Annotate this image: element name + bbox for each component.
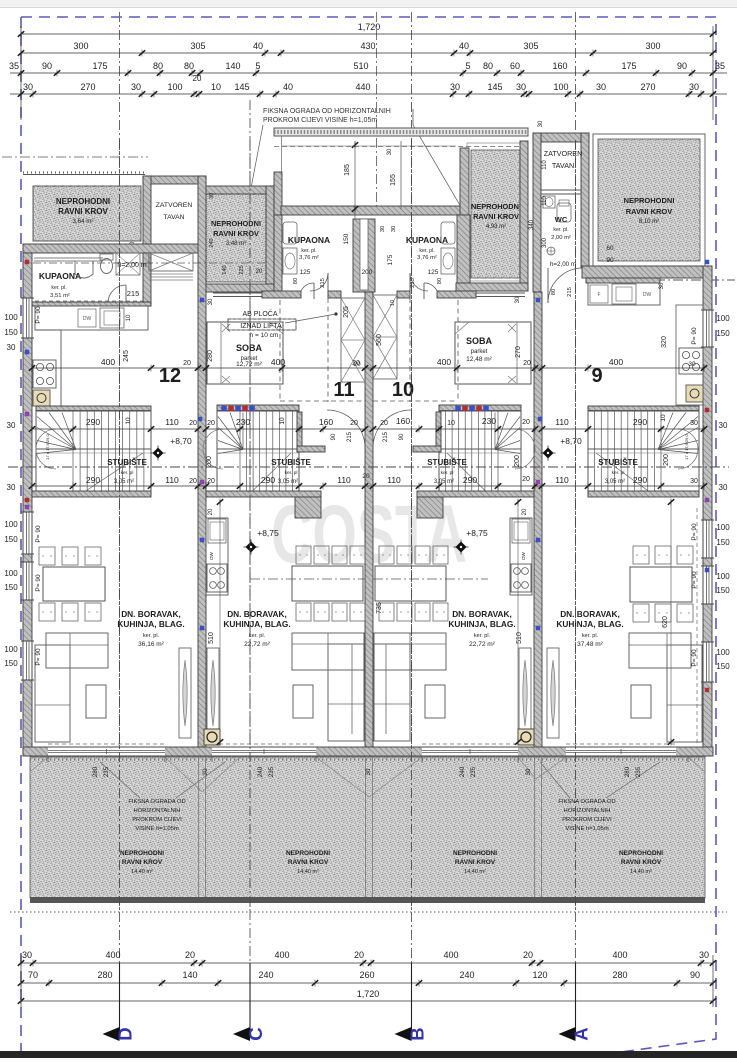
svg-text:3,48 m²: 3,48 m² (226, 241, 246, 247)
svg-text:20: 20 (522, 508, 528, 515)
svg-text:+8,70: +8,70 (560, 436, 582, 446)
svg-text:10: 10 (279, 417, 286, 425)
svg-text:RAVNI KROV: RAVNI KROV (213, 229, 259, 238)
svg-text:400: 400 (437, 357, 451, 367)
svg-text:PROKROM CIJEVI VISINE h=1,05m: PROKROM CIJEVI VISINE h=1,05m (263, 117, 377, 124)
svg-text:100: 100 (167, 82, 182, 92)
svg-text:FIKSNA OGRADA OD: FIKSNA OGRADA OD (558, 799, 615, 805)
svg-text:30: 30 (719, 421, 728, 430)
svg-text:280: 280 (624, 766, 631, 777)
svg-text:3,64 m²: 3,64 m² (73, 218, 94, 225)
svg-text:30: 30 (689, 82, 699, 92)
svg-text:235: 235 (470, 766, 477, 777)
svg-text:KUHINJA, BLAG.: KUHINJA, BLAG. (223, 619, 290, 629)
svg-text:22,72 m²: 22,72 m² (244, 641, 270, 648)
svg-text:37,48 m²: 37,48 m² (577, 641, 603, 648)
svg-text:20: 20 (523, 950, 533, 960)
svg-text:RAVNI KROV: RAVNI KROV (626, 207, 673, 216)
svg-text:30: 30 (690, 420, 698, 427)
svg-text:110: 110 (165, 417, 179, 427)
svg-text:10: 10 (660, 414, 667, 422)
svg-text:280: 280 (92, 766, 99, 777)
svg-text:60: 60 (606, 245, 614, 252)
svg-text:100: 100 (4, 313, 18, 322)
svg-text:155: 155 (390, 174, 397, 186)
svg-text:35: 35 (9, 61, 19, 71)
svg-text:145: 145 (234, 82, 249, 92)
svg-text:NEPROHODNI: NEPROHODNI (286, 850, 330, 857)
svg-text:HORIZONTALNIH: HORIZONTALNIH (564, 808, 611, 814)
svg-text:510: 510 (516, 632, 523, 644)
svg-text:100: 100 (553, 82, 568, 92)
svg-text:20: 20 (522, 419, 530, 426)
svg-text:110: 110 (542, 160, 548, 170)
svg-text:RAVNI KROV: RAVNI KROV (288, 859, 329, 866)
svg-text:DW: DW (643, 292, 652, 298)
svg-text:110: 110 (555, 475, 569, 485)
svg-text:3,05 m²: 3,05 m² (114, 479, 134, 485)
svg-text:215: 215 (567, 287, 573, 297)
svg-text:12: 12 (159, 365, 181, 387)
svg-text:VISINE h=1,05m: VISINE h=1,05m (565, 826, 609, 832)
svg-text:17 x 17,6/29,0: 17 x 17,6/29,0 (684, 434, 689, 460)
svg-text:230: 230 (236, 417, 250, 427)
svg-text:225: 225 (239, 265, 245, 274)
svg-text:175: 175 (387, 254, 394, 265)
svg-text:20: 20 (350, 420, 358, 427)
svg-text:FIKSNA OGRADA OD: FIKSNA OGRADA OD (128, 799, 185, 805)
svg-text:20: 20 (523, 360, 531, 367)
svg-text:120: 120 (532, 970, 547, 980)
svg-text:80: 80 (483, 61, 493, 71)
svg-text:14,40 m²: 14,40 m² (464, 869, 486, 875)
svg-text:110: 110 (337, 475, 351, 485)
svg-text:17 x 17,6/29,0: 17 x 17,6/29,0 (45, 434, 50, 460)
svg-text:NEPROHODNI: NEPROHODNI (120, 850, 164, 857)
svg-text:90: 90 (399, 433, 405, 440)
svg-text:3,05 m²: 3,05 m² (605, 479, 625, 485)
svg-text:12,72 m²: 12,72 m² (236, 361, 262, 368)
svg-text:30: 30 (515, 296, 521, 303)
svg-text:F: F (597, 292, 600, 298)
svg-text:30: 30 (7, 343, 16, 352)
svg-text:3,05 m²: 3,05 m² (434, 479, 454, 485)
svg-text:40: 40 (459, 41, 469, 51)
svg-text:150: 150 (716, 662, 730, 671)
svg-text:30: 30 (596, 82, 606, 92)
svg-text:80: 80 (153, 61, 163, 71)
svg-text:AB PLOČA: AB PLOČA (242, 309, 277, 318)
svg-text:parket: parket (471, 349, 488, 355)
svg-text:STUBIŠTE: STUBIŠTE (427, 458, 467, 467)
svg-text:300: 300 (73, 41, 88, 51)
svg-text:RAVNI KROV: RAVNI KROV (58, 207, 108, 216)
svg-text:20: 20 (352, 360, 360, 367)
svg-text:100: 100 (4, 520, 18, 529)
svg-text:30: 30 (365, 768, 372, 775)
svg-text:150: 150 (4, 535, 18, 544)
svg-text:20: 20 (189, 478, 197, 485)
svg-text:30: 30 (719, 483, 728, 492)
svg-text:235: 235 (103, 766, 110, 777)
svg-text:RAVNI KROV: RAVNI KROV (473, 212, 519, 221)
svg-text:DN. BORAVAK,: DN. BORAVAK, (227, 609, 287, 619)
svg-text:IZNAD LIFTA: IZNAD LIFTA (240, 323, 282, 330)
svg-text:160: 160 (319, 417, 333, 427)
svg-text:ker. pl.: ker. pl. (301, 248, 316, 254)
svg-text:235: 235 (268, 766, 275, 777)
svg-text:215: 215 (320, 278, 326, 288)
svg-text:10: 10 (125, 417, 132, 425)
svg-text:DN. BORAVAK,: DN. BORAVAK, (560, 609, 620, 619)
svg-text:200: 200 (362, 269, 373, 276)
svg-text:20: 20 (362, 473, 370, 480)
svg-text:620: 620 (662, 616, 669, 628)
svg-text:P= 90: P= 90 (691, 649, 698, 667)
svg-text:30: 30 (22, 950, 32, 960)
svg-text:30: 30 (208, 298, 214, 305)
svg-text:h = 10 cm: h = 10 cm (250, 332, 279, 339)
svg-text:+8,75: +8,75 (257, 528, 279, 538)
svg-text:30: 30 (538, 120, 544, 127)
svg-text:305: 305 (523, 41, 538, 51)
svg-text:510: 510 (353, 61, 368, 71)
svg-text:ker. pl.: ker. pl. (553, 227, 568, 233)
svg-text:20: 20 (208, 508, 214, 515)
svg-text:10: 10 (390, 300, 396, 306)
svg-text:290: 290 (463, 475, 477, 485)
svg-text:150: 150 (4, 659, 18, 668)
svg-text:240: 240 (459, 970, 474, 980)
svg-text:270: 270 (640, 82, 655, 92)
svg-text:TAVAN: TAVAN (163, 214, 184, 221)
svg-text:36,16 m²: 36,16 m² (138, 641, 164, 648)
svg-text:40: 40 (283, 82, 293, 92)
svg-text:20: 20 (522, 476, 530, 483)
svg-text:20: 20 (189, 420, 197, 427)
svg-text:10: 10 (126, 314, 132, 321)
svg-text:35: 35 (715, 61, 725, 71)
svg-text:30: 30 (209, 193, 215, 199)
svg-text:NEPROHODNI: NEPROHODNI (471, 202, 521, 211)
svg-text:270: 270 (80, 82, 95, 92)
svg-text:80: 80 (293, 278, 299, 284)
svg-text:A: A (571, 1027, 592, 1040)
svg-text:290: 290 (633, 475, 647, 485)
svg-text:20: 20 (185, 950, 195, 960)
svg-text:P= 90: P= 90 (35, 306, 42, 324)
svg-text:80: 80 (184, 61, 194, 71)
svg-text:140: 140 (182, 970, 197, 980)
svg-text:ZATVOREN: ZATVOREN (544, 149, 583, 158)
svg-text:90: 90 (606, 257, 614, 264)
svg-text:400: 400 (274, 950, 289, 960)
svg-text:110: 110 (555, 417, 569, 427)
svg-text:70: 70 (28, 970, 38, 980)
svg-text:560: 560 (376, 334, 383, 346)
svg-text:12,48 m²: 12,48 m² (466, 356, 492, 363)
svg-text:ker. pl.: ker. pl. (51, 285, 66, 291)
svg-text:DN. BORAVAK,: DN. BORAVAK, (121, 609, 181, 619)
svg-text:110: 110 (387, 475, 401, 485)
svg-text:HORIZONTALNIH: HORIZONTALNIH (134, 808, 181, 814)
svg-text:280: 280 (97, 970, 112, 980)
svg-text:90: 90 (331, 433, 337, 440)
svg-text:PROKROM CIJEVI: PROKROM CIJEVI (562, 817, 612, 823)
svg-text:40: 40 (253, 41, 263, 51)
svg-text:8,10 m²: 8,10 m² (639, 219, 659, 225)
svg-text:P= 90: P= 90 (35, 574, 42, 592)
svg-text:14,40 m²: 14,40 m² (131, 869, 153, 875)
svg-text:230: 230 (482, 416, 496, 426)
svg-text:280: 280 (207, 350, 214, 362)
svg-text:ker. pl.: ker. pl. (582, 633, 599, 639)
svg-text:140: 140 (225, 61, 240, 71)
svg-text:ker. pl.: ker. pl. (249, 633, 266, 639)
svg-text:150: 150 (4, 328, 18, 337)
svg-text:80: 80 (551, 289, 557, 295)
svg-text:D: D (115, 1027, 136, 1040)
svg-text:290: 290 (633, 417, 647, 427)
svg-text:KUPAONA: KUPAONA (288, 235, 330, 245)
svg-text:240: 240 (459, 766, 466, 777)
svg-text:140: 140 (222, 265, 228, 274)
svg-text:125: 125 (300, 269, 311, 276)
svg-text:3,05 m²: 3,05 m² (278, 479, 298, 485)
svg-text:215: 215 (383, 431, 389, 442)
svg-text:22,72 m²: 22,72 m² (469, 641, 495, 648)
svg-text:TAVAN: TAVAN (552, 161, 574, 170)
svg-text:ker. pl: ker. pl (121, 470, 134, 476)
svg-text:175: 175 (621, 61, 636, 71)
svg-text:9: 9 (591, 365, 602, 387)
svg-text:200: 200 (206, 456, 213, 468)
svg-text:400: 400 (443, 950, 458, 960)
svg-text:DW: DW (83, 316, 92, 322)
svg-text:SOBA: SOBA (466, 336, 493, 346)
svg-text:215: 215 (410, 278, 416, 288)
svg-text:290: 290 (86, 417, 100, 427)
svg-text:P= 90: P= 90 (691, 571, 698, 589)
svg-text:P= 90: P= 90 (35, 525, 42, 543)
svg-text:30: 30 (7, 483, 16, 492)
svg-text:ker. pl.: ker. pl. (419, 248, 434, 254)
svg-text:30: 30 (690, 478, 698, 485)
svg-text:400: 400 (101, 357, 115, 367)
svg-text:ker. pl.: ker. pl. (474, 633, 491, 639)
svg-text:30: 30 (380, 226, 386, 232)
svg-text:NEPROHODNI: NEPROHODNI (56, 197, 110, 206)
svg-text:270: 270 (515, 346, 522, 358)
svg-text:14,40 m²: 14,40 m² (630, 869, 652, 875)
svg-text:STUBIŠTE: STUBIŠTE (107, 458, 147, 467)
svg-text:430: 430 (360, 41, 375, 51)
svg-text:215: 215 (127, 289, 140, 298)
svg-text:320: 320 (661, 336, 668, 348)
svg-text:30: 30 (202, 768, 209, 775)
svg-text:KUHINJA, BLAG.: KUHINJA, BLAG. (556, 619, 623, 629)
svg-text:1,720: 1,720 (357, 989, 380, 999)
svg-text:400: 400 (612, 950, 627, 960)
svg-text:30: 30 (516, 82, 526, 92)
svg-text:2,00 m²: 2,00 m² (551, 235, 571, 241)
svg-text:110: 110 (542, 196, 548, 206)
svg-text:150: 150 (343, 233, 350, 244)
svg-text:30: 30 (450, 82, 460, 92)
svg-text:150: 150 (716, 586, 730, 595)
svg-text:185: 185 (344, 164, 351, 176)
svg-text:240: 240 (258, 970, 273, 980)
svg-text:200: 200 (514, 455, 521, 467)
svg-text:NEPROHODNI: NEPROHODNI (453, 850, 497, 857)
svg-text:20: 20 (354, 950, 364, 960)
svg-text:510: 510 (208, 632, 215, 644)
svg-text:20: 20 (193, 74, 202, 83)
svg-text:RAVNI KROV: RAVNI KROV (455, 859, 496, 866)
svg-text:205: 205 (343, 306, 350, 318)
svg-text:110: 110 (165, 475, 179, 485)
svg-text:80: 80 (437, 278, 443, 284)
svg-text:280: 280 (612, 970, 627, 980)
svg-text:305: 305 (190, 41, 205, 51)
svg-text:14,40 m²: 14,40 m² (297, 869, 319, 875)
svg-text:20: 20 (207, 478, 215, 485)
svg-text:3,51 m²: 3,51 m² (50, 293, 70, 299)
svg-text:30: 30 (131, 82, 141, 92)
svg-text:235: 235 (635, 766, 642, 777)
svg-text:20: 20 (183, 360, 191, 367)
svg-text:90: 90 (42, 61, 52, 71)
svg-text:100: 100 (716, 572, 730, 581)
svg-text:20: 20 (380, 420, 388, 427)
svg-text:ker. pl: ker. pl (285, 470, 298, 476)
svg-text:340: 340 (529, 219, 535, 230)
svg-text:245: 245 (123, 350, 130, 362)
svg-text:440: 440 (355, 82, 370, 92)
svg-text:ZATVOREN: ZATVOREN (156, 202, 193, 209)
svg-text:STUBIŠTE: STUBIŠTE (598, 458, 638, 467)
svg-text:4,93 m²: 4,93 m² (486, 224, 506, 230)
svg-text:215: 215 (347, 431, 353, 442)
svg-text:90: 90 (690, 970, 700, 980)
svg-text:150: 150 (4, 583, 18, 592)
svg-text:30: 30 (391, 226, 397, 232)
svg-text:90: 90 (677, 61, 687, 71)
svg-text:KUHINJA, BLAG.: KUHINJA, BLAG. (117, 619, 184, 629)
svg-text:20: 20 (256, 269, 263, 275)
svg-text:NEPROHODNI: NEPROHODNI (211, 219, 261, 228)
svg-text:735: 735 (376, 602, 383, 614)
svg-text:125: 125 (428, 269, 439, 276)
svg-text:260: 260 (359, 970, 374, 980)
svg-text:100: 100 (716, 648, 730, 657)
svg-text:300: 300 (542, 237, 548, 248)
svg-text:30: 30 (525, 768, 532, 775)
svg-text:P= 90: P= 90 (35, 648, 42, 666)
svg-text:10: 10 (447, 420, 455, 427)
svg-text:300: 300 (645, 41, 660, 51)
svg-text:KUHINJA, BLAG.: KUHINJA, BLAG. (448, 619, 515, 629)
svg-text:1,720: 1,720 (358, 22, 381, 32)
svg-text:100: 100 (716, 523, 730, 532)
svg-text:STUBIŠTE: STUBIŠTE (271, 458, 311, 467)
svg-text:20: 20 (207, 420, 215, 427)
svg-text:60: 60 (510, 61, 520, 71)
svg-text:h=2,00 m: h=2,00 m (550, 261, 576, 268)
svg-text:DN. BORAVAK,: DN. BORAVAK, (452, 609, 512, 619)
svg-text:P= 90: P= 90 (691, 523, 698, 541)
svg-text:RAVNI KROV: RAVNI KROV (621, 859, 662, 866)
svg-text:160: 160 (396, 416, 410, 426)
svg-text:VISINE h=1,05m: VISINE h=1,05m (135, 826, 179, 832)
svg-text:30: 30 (7, 421, 16, 430)
svg-text:DW: DW (521, 552, 526, 560)
svg-text:30: 30 (699, 950, 709, 960)
svg-text:10: 10 (392, 379, 414, 401)
svg-text:400: 400 (609, 357, 623, 367)
svg-text:3,76 m²: 3,76 m² (417, 255, 437, 261)
svg-text:150: 150 (716, 329, 730, 338)
svg-text:145: 145 (487, 82, 502, 92)
svg-text:5: 5 (465, 61, 470, 71)
svg-text:100: 100 (4, 569, 18, 578)
svg-text:+8,75: +8,75 (466, 528, 488, 538)
svg-text:290: 290 (261, 475, 275, 485)
svg-text:5: 5 (255, 61, 260, 71)
svg-text:175: 175 (92, 61, 107, 71)
svg-text:FIKSNA OGRADA OD HORIZONTALNIH: FIKSNA OGRADA OD HORIZONTALNIH (263, 108, 391, 115)
svg-text:100: 100 (716, 314, 730, 323)
svg-text:240: 240 (257, 766, 264, 777)
svg-text:10: 10 (211, 82, 221, 92)
svg-text:+8,70: +8,70 (170, 436, 192, 446)
svg-text:ker. pl: ker. pl (612, 470, 625, 476)
svg-text:30: 30 (23, 82, 33, 92)
svg-text:DW: DW (209, 552, 214, 560)
svg-text:SOBA: SOBA (236, 343, 263, 353)
svg-text:NEPROHODNI: NEPROHODNI (619, 850, 663, 857)
svg-text:B: B (407, 1027, 428, 1040)
svg-text:30: 30 (688, 361, 696, 368)
svg-text:100: 100 (4, 645, 18, 654)
svg-text:PROKROM CIJEVI: PROKROM CIJEVI (132, 817, 182, 823)
svg-text:240: 240 (209, 238, 215, 247)
svg-text:200: 200 (663, 454, 670, 466)
svg-text:RAVNI KROV: RAVNI KROV (122, 859, 163, 866)
svg-text:400: 400 (105, 950, 120, 960)
svg-text:160: 160 (552, 61, 567, 71)
svg-text:C: C (245, 1027, 266, 1040)
svg-text:290: 290 (86, 475, 100, 485)
svg-text:ker. pl.: ker. pl. (143, 633, 160, 639)
svg-text:3,76 m²: 3,76 m² (299, 255, 319, 261)
svg-text:30: 30 (387, 148, 393, 155)
svg-text:h=2,00 m: h=2,00 m (117, 262, 147, 269)
svg-text:ker. pl: ker. pl (441, 470, 454, 476)
svg-text:NEPROHODNI: NEPROHODNI (624, 196, 675, 205)
svg-text:P= 90: P= 90 (691, 327, 698, 345)
svg-text:150: 150 (716, 538, 730, 547)
svg-text:11: 11 (333, 379, 354, 401)
svg-text:400: 400 (271, 357, 285, 367)
